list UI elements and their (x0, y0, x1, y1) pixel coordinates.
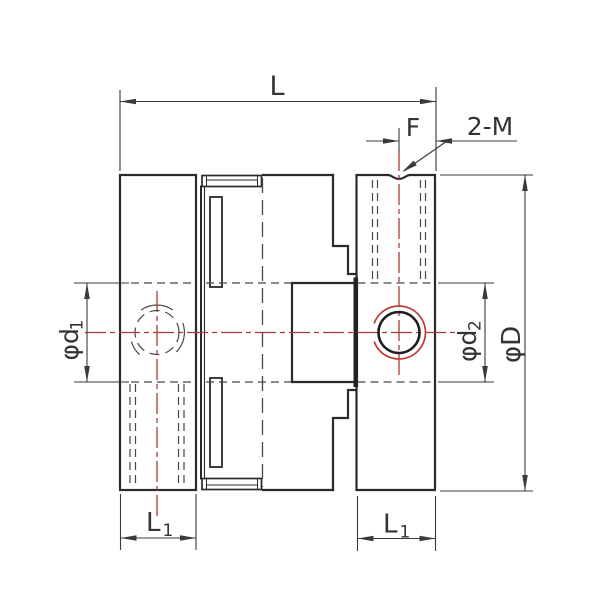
arrowhead (120, 99, 136, 105)
label-total-length: L (269, 71, 284, 102)
arrowhead (522, 175, 528, 191)
left-thread-arc (176, 323, 184, 352)
arrowhead (522, 475, 528, 491)
label-bore-left: φd (55, 328, 84, 360)
label-bore-right: φd (453, 330, 482, 362)
label-hub-length-right-subscript: 1 (400, 523, 411, 543)
label-setscrew-callout: 2-M (467, 112, 514, 141)
centerlines (85, 150, 457, 517)
jaw-step-bottom (333, 390, 357, 490)
label-hub-length-left-subscript: 1 (163, 521, 174, 541)
spider-slot-lower (210, 378, 222, 467)
jaw-step-top (333, 175, 357, 274)
label-hub-length-left: L (146, 508, 161, 538)
arrowhead (482, 283, 488, 299)
dimension-arrowheads (84, 99, 528, 542)
retaining-strip-bottom-detail (207, 479, 258, 490)
arrowhead (84, 283, 90, 299)
arrowhead (121, 535, 137, 541)
label-bore-left-subscript: 1 (68, 320, 88, 331)
drawing-svg: L F 2-M φd 1 φd 2 φD L 1 L 1 (0, 0, 600, 600)
arrowhead (383, 138, 399, 144)
dimension-lines (74, 87, 533, 551)
leader-arrowhead (402, 161, 417, 172)
arrowhead (84, 366, 90, 382)
arrowhead (420, 99, 436, 105)
label-setscrew-offset: F (406, 113, 420, 142)
label-hub-length-right: L (383, 510, 398, 540)
arrowhead (420, 536, 436, 542)
label-outer-diameter: φD (497, 326, 527, 363)
arrowhead (180, 535, 196, 541)
arrowhead (482, 366, 488, 382)
coupling-technical-drawing: L F 2-M φd 1 φd 2 φD L 1 L 1 (0, 0, 600, 600)
retaining-strip-top (202, 176, 262, 187)
retaining-strip-top-detail (207, 176, 258, 187)
arrowhead (358, 536, 374, 542)
spider-slot-upper (210, 197, 222, 287)
label-bore-right-subscript: 2 (466, 320, 486, 331)
retaining-strip-bottom (202, 479, 262, 490)
